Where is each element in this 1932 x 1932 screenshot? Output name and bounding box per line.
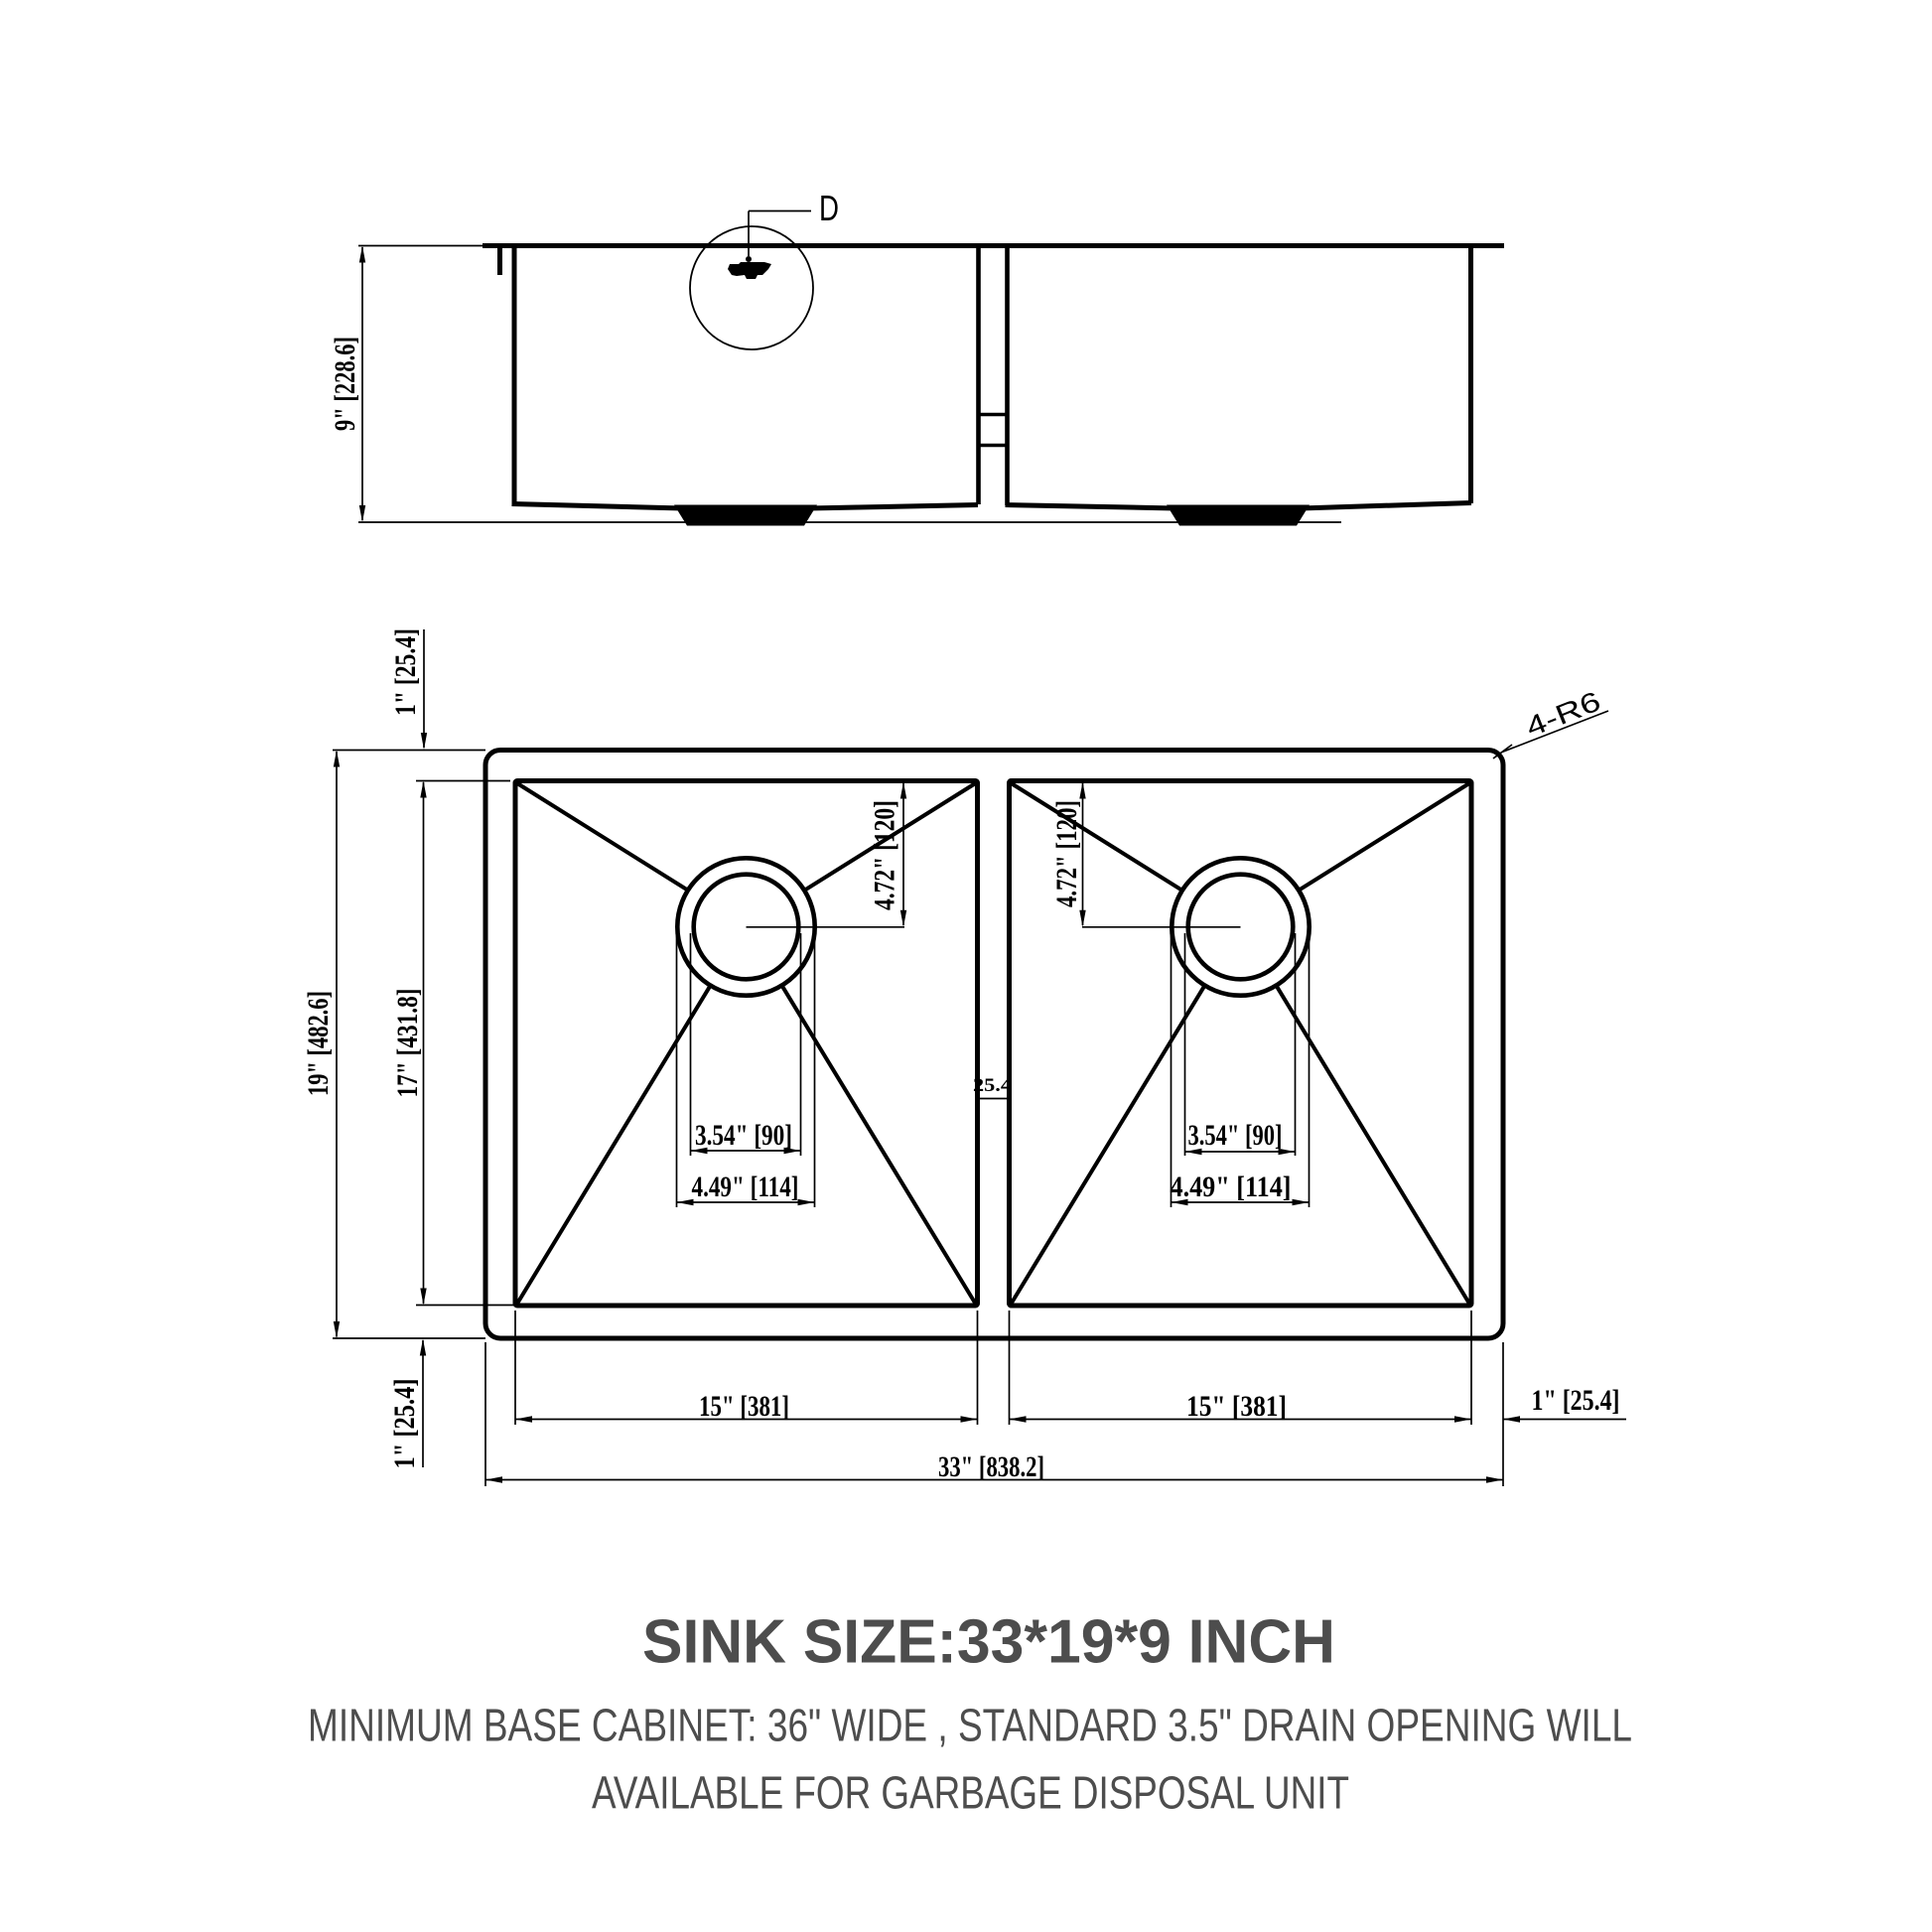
svg-text:1" [25.4]: 1" [25.4] bbox=[1532, 1384, 1620, 1417]
svg-text:1" [25.4]: 1" [25.4] bbox=[388, 1379, 421, 1469]
svg-text:4.72" [120]: 4.72" [120] bbox=[1050, 800, 1083, 907]
svg-text:33" [838.2]: 33" [838.2] bbox=[938, 1450, 1044, 1483]
svg-text:3.54" [90]: 3.54" [90] bbox=[695, 1119, 792, 1152]
svg-text:SINK SIZE:33*19*9 INCH: SINK SIZE:33*19*9 INCH bbox=[642, 1608, 1335, 1677]
svg-text:MINIMUM BASE CABINET: 36" WIDE: MINIMUM BASE CABINET: 36" WIDE , STANDAR… bbox=[308, 1700, 1632, 1751]
svg-text:9" [228.6]: 9" [228.6] bbox=[329, 337, 361, 431]
svg-text:D: D bbox=[819, 188, 839, 228]
svg-text:4.72" [120]: 4.72" [120] bbox=[869, 800, 901, 910]
svg-text:1" [25.4]: 1" [25.4] bbox=[389, 628, 422, 716]
svg-text:19" [482.6]: 19" [482.6] bbox=[302, 991, 335, 1096]
svg-text:AVAILABLE FOR GARBAGE DISPOSAL: AVAILABLE FOR GARBAGE DISPOSAL UNIT bbox=[592, 1767, 1349, 1819]
svg-text:25.4: 25.4 bbox=[973, 1075, 1013, 1096]
svg-text:3.54" [90]: 3.54" [90] bbox=[1188, 1119, 1283, 1152]
svg-text:17" [431.8]: 17" [431.8] bbox=[391, 989, 424, 1098]
svg-text:15" [381]: 15" [381] bbox=[699, 1390, 789, 1423]
svg-text:4.49" [114]: 4.49" [114] bbox=[692, 1171, 799, 1203]
svg-text:15" [381]: 15" [381] bbox=[1186, 1390, 1287, 1423]
svg-text:4.49" [114]: 4.49" [114] bbox=[1171, 1171, 1292, 1203]
